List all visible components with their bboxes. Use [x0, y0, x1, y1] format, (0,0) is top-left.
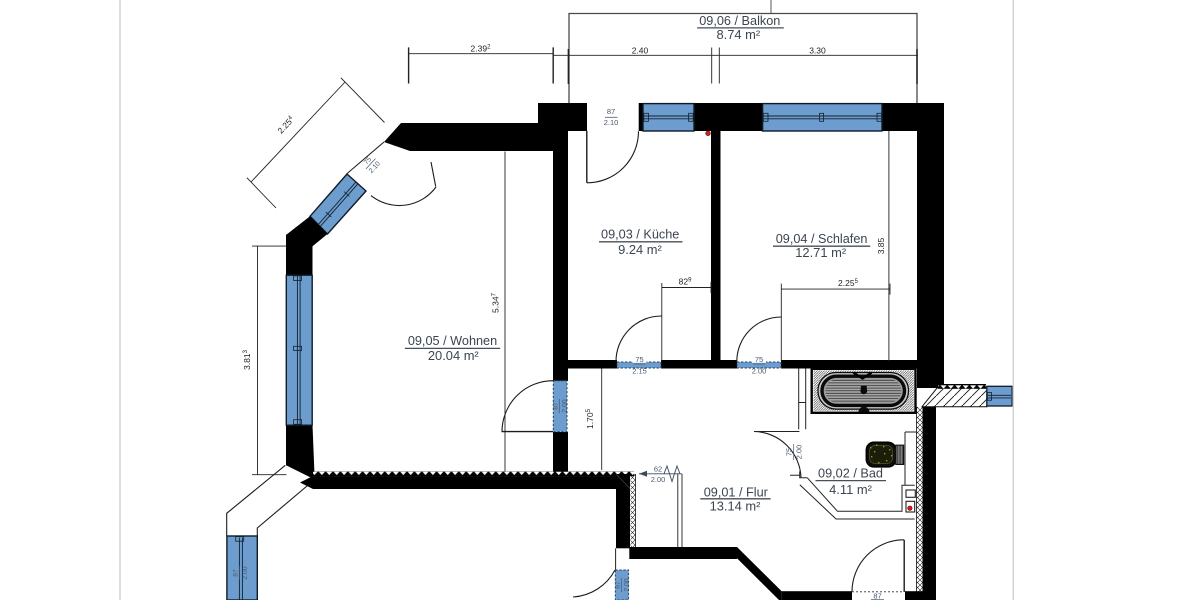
svg-text:2.00: 2.00: [242, 566, 249, 579]
svg-text:2.00: 2.00: [651, 475, 666, 484]
svg-text:09,05 / Wohnen: 09,05 / Wohnen: [408, 334, 497, 348]
svg-text:87: 87: [873, 592, 881, 600]
svg-text:8.74 m²: 8.74 m²: [716, 27, 760, 42]
svg-text:62: 62: [654, 464, 662, 473]
svg-text:2.15: 2.15: [632, 367, 647, 376]
svg-text:4.11 m²: 4.11 m²: [829, 482, 872, 497]
svg-text:2.00: 2.00: [795, 445, 804, 460]
svg-text:09,06 / Balkon: 09,06 / Balkon: [699, 14, 780, 28]
svg-text:87: 87: [233, 569, 240, 577]
svg-text:3.30: 3.30: [809, 45, 826, 55]
svg-text:2.00: 2.00: [562, 399, 569, 412]
svg-text:75: 75: [635, 355, 643, 364]
svg-text:12.71 m²: 12.71 m²: [795, 245, 847, 260]
svg-text:75: 75: [755, 355, 763, 364]
svg-text:13.14 m²: 13.14 m²: [710, 499, 762, 514]
svg-text:09,04 / Schlafen: 09,04 / Schlafen: [776, 232, 868, 246]
svg-text:9.24 m²: 9.24 m²: [618, 242, 662, 257]
svg-text:87: 87: [614, 581, 621, 589]
svg-text:2.10: 2.10: [604, 118, 619, 127]
svg-text:09,02 / Bad: 09,02 / Bad: [818, 466, 883, 480]
svg-text:09,03 / Küche: 09,03 / Küche: [601, 228, 679, 242]
svg-text:3.85: 3.85: [876, 237, 886, 254]
svg-text:75: 75: [785, 448, 794, 456]
svg-text:2.00: 2.00: [752, 367, 767, 376]
svg-text:2.40: 2.40: [632, 45, 649, 55]
svg-text:87: 87: [607, 107, 615, 116]
svg-text:09,01 / Flur: 09,01 / Flur: [704, 486, 769, 500]
svg-text:2.00: 2.00: [624, 578, 631, 591]
svg-text:20.04 m²: 20.04 m²: [428, 348, 480, 363]
svg-text:87: 87: [552, 402, 559, 410]
